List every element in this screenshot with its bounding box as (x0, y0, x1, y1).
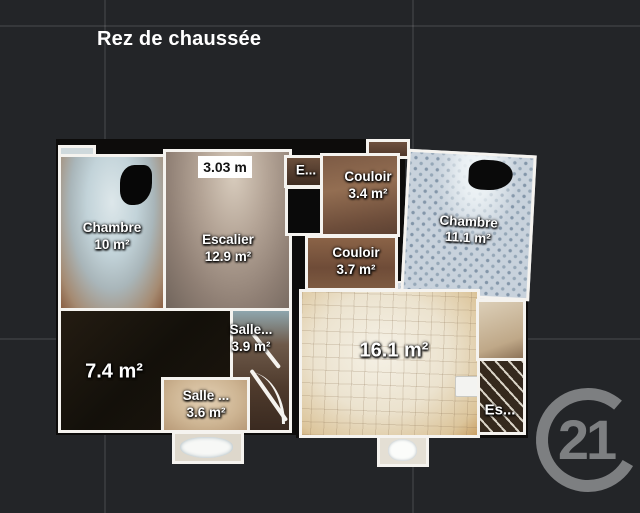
room-16-1 (299, 289, 480, 438)
furniture-shadow (468, 159, 514, 191)
bathtub-bay (172, 431, 244, 464)
alcove-right (476, 299, 526, 361)
grid-line-horizontal (0, 25, 640, 27)
room-chambre-11-1: Chambre 11.1 m² (400, 149, 536, 302)
room-label-salle-3-9: Salle... 3.9 m² (230, 322, 273, 356)
room-label-chambre-10: Chambre 10 m² (83, 220, 142, 254)
bathtub-icon (180, 437, 233, 458)
room-label-salle-3-6: Salle ... 3.6 m² (183, 388, 230, 422)
furniture-shadow (120, 165, 152, 205)
room-label-escalier-down: Es... (485, 402, 516, 421)
wc-bay (377, 434, 429, 467)
floor-title: Rez de chaussée (97, 28, 261, 51)
century21-number: 21 (558, 408, 616, 471)
room-label-escalier: Escalier 12.9 m² (202, 232, 254, 266)
staircase-down (477, 358, 526, 435)
room-label-couloir-3-4: Couloir 3.4 m² (344, 169, 391, 203)
room-label-entree: E... (296, 163, 316, 180)
room-label-couloir-3-7: Couloir 3.7 m² (332, 245, 379, 279)
century21-logo: 21 (523, 375, 640, 505)
wc-fixture-icon (388, 439, 417, 461)
room-label-16-1: 16.1 m² (360, 339, 429, 364)
room-label-7-4: 7.4 m² (85, 360, 143, 385)
measurement-tag: 3.03 m (198, 156, 252, 178)
room-label-chambre-11-1: Chambre 11.1 m² (438, 212, 498, 249)
